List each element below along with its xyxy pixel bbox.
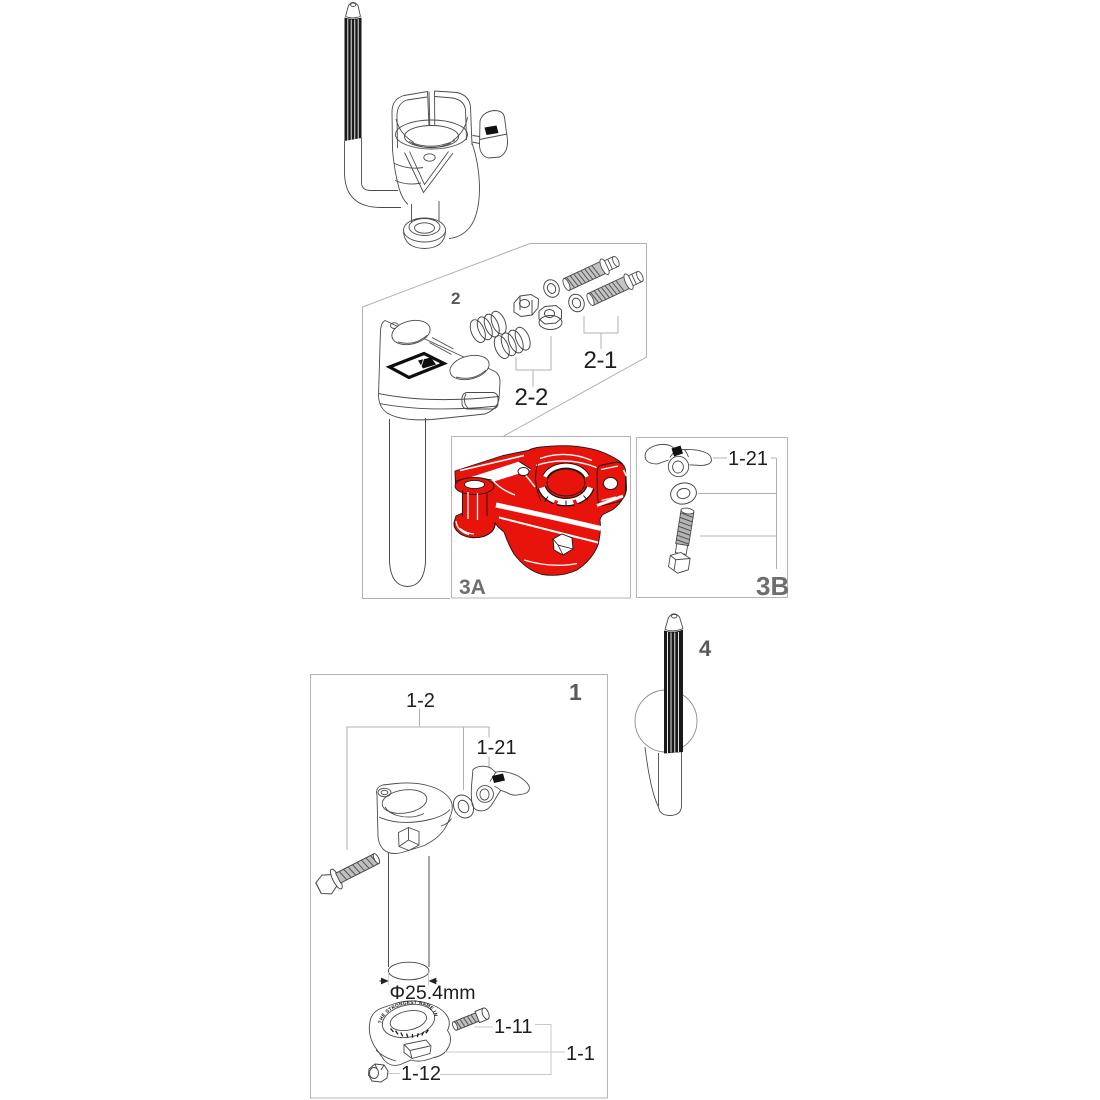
svg-text:2-2: 2-2: [515, 384, 549, 411]
svg-text:2-1: 2-1: [584, 347, 618, 374]
svg-text:4: 4: [699, 636, 712, 661]
svg-text:3B: 3B: [756, 571, 789, 601]
svg-text:1-1: 1-1: [566, 1043, 595, 1065]
svg-text:1-21: 1-21: [728, 448, 768, 470]
svg-text:Φ25.4mm: Φ25.4mm: [390, 982, 476, 1004]
svg-text:1-11: 1-11: [494, 1016, 533, 1038]
svg-text:2: 2: [451, 289, 460, 308]
svg-text:1-2: 1-2: [406, 690, 435, 712]
svg-text:1: 1: [569, 679, 582, 705]
svg-text:1-12: 1-12: [401, 1063, 441, 1085]
svg-text:3A: 3A: [459, 576, 486, 599]
svg-text:THE STRONGEST NAME IN DRUMS™: THE STRONGEST NAME IN DRUMS™: [0, 0, 439, 1024]
svg-text:1-21: 1-21: [477, 737, 517, 759]
